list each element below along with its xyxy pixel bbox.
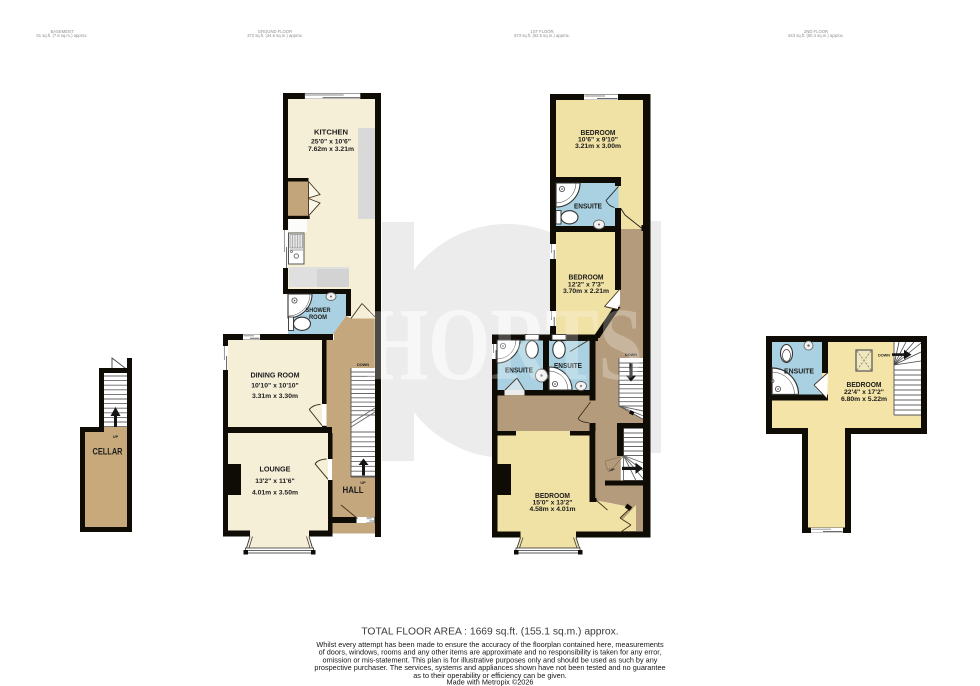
svg-text:25'0" x 10'6": 25'0" x 10'6" bbox=[311, 139, 351, 146]
svg-text:DOWN: DOWN bbox=[878, 354, 890, 358]
svg-text:ROOM: ROOM bbox=[309, 314, 327, 321]
svg-text:ENSUITE: ENSUITE bbox=[784, 367, 814, 376]
svg-text:DINING ROOM: DINING ROOM bbox=[251, 371, 300, 380]
svg-text:372 sq.ft. (34.6 sq.m.) approx: 372 sq.ft. (34.6 sq.m.) approx. bbox=[247, 33, 303, 38]
svg-text:SHOWER: SHOWER bbox=[306, 307, 331, 314]
svg-text:UP: UP bbox=[609, 468, 615, 472]
svg-text:BEDROOM: BEDROOM bbox=[569, 273, 604, 282]
svg-text:673 sq.ft. (62.5 sq.m.) approx: 673 sq.ft. (62.5 sq.m.) approx. bbox=[514, 33, 570, 38]
svg-text:UP: UP bbox=[113, 435, 119, 439]
svg-text:HALL: HALL bbox=[343, 485, 365, 495]
svg-text:3.31m x 3.30m: 3.31m x 3.30m bbox=[252, 393, 298, 400]
svg-text:4.58m x 4.01m: 4.58m x 4.01m bbox=[529, 506, 575, 513]
svg-text:ENSUITE: ENSUITE bbox=[574, 204, 602, 211]
svg-text:HORTS: HORTS bbox=[366, 287, 643, 402]
svg-text:LOUNGE: LOUNGE bbox=[260, 465, 291, 474]
svg-text:3.21m x 3.00m: 3.21m x 3.00m bbox=[575, 143, 621, 150]
svg-text:7.62m x 3.21m: 7.62m x 3.21m bbox=[308, 146, 354, 153]
svg-text:BEDROOM: BEDROOM bbox=[847, 380, 882, 389]
svg-text:10'10" x 10'10": 10'10" x 10'10" bbox=[251, 383, 298, 390]
svg-text:22'4" x 17'2": 22'4" x 17'2" bbox=[844, 389, 884, 396]
svg-text:543 sq.ft. (50.4 sq.m.) approx: 543 sq.ft. (50.4 sq.m.) approx. bbox=[788, 33, 844, 38]
svg-text:81 sq.ft. (7.6 sq.m.) approx.: 81 sq.ft. (7.6 sq.m.) approx. bbox=[36, 33, 87, 38]
svg-text:4.01m x 3.50m: 4.01m x 3.50m bbox=[252, 490, 298, 497]
svg-text:TOTAL FLOOR AREA : 1669 sq.ft.: TOTAL FLOOR AREA : 1669 sq.ft. (155.1 sq… bbox=[361, 627, 618, 638]
svg-text:KITCHEN: KITCHEN bbox=[314, 128, 348, 137]
svg-text:6.80m x 5.22m: 6.80m x 5.22m bbox=[841, 396, 887, 403]
svg-text:Made with Metropix ©2026: Made with Metropix ©2026 bbox=[447, 678, 534, 686]
svg-text:13'2" x 11'6": 13'2" x 11'6" bbox=[255, 478, 295, 485]
svg-text:CELLAR: CELLAR bbox=[93, 447, 123, 457]
